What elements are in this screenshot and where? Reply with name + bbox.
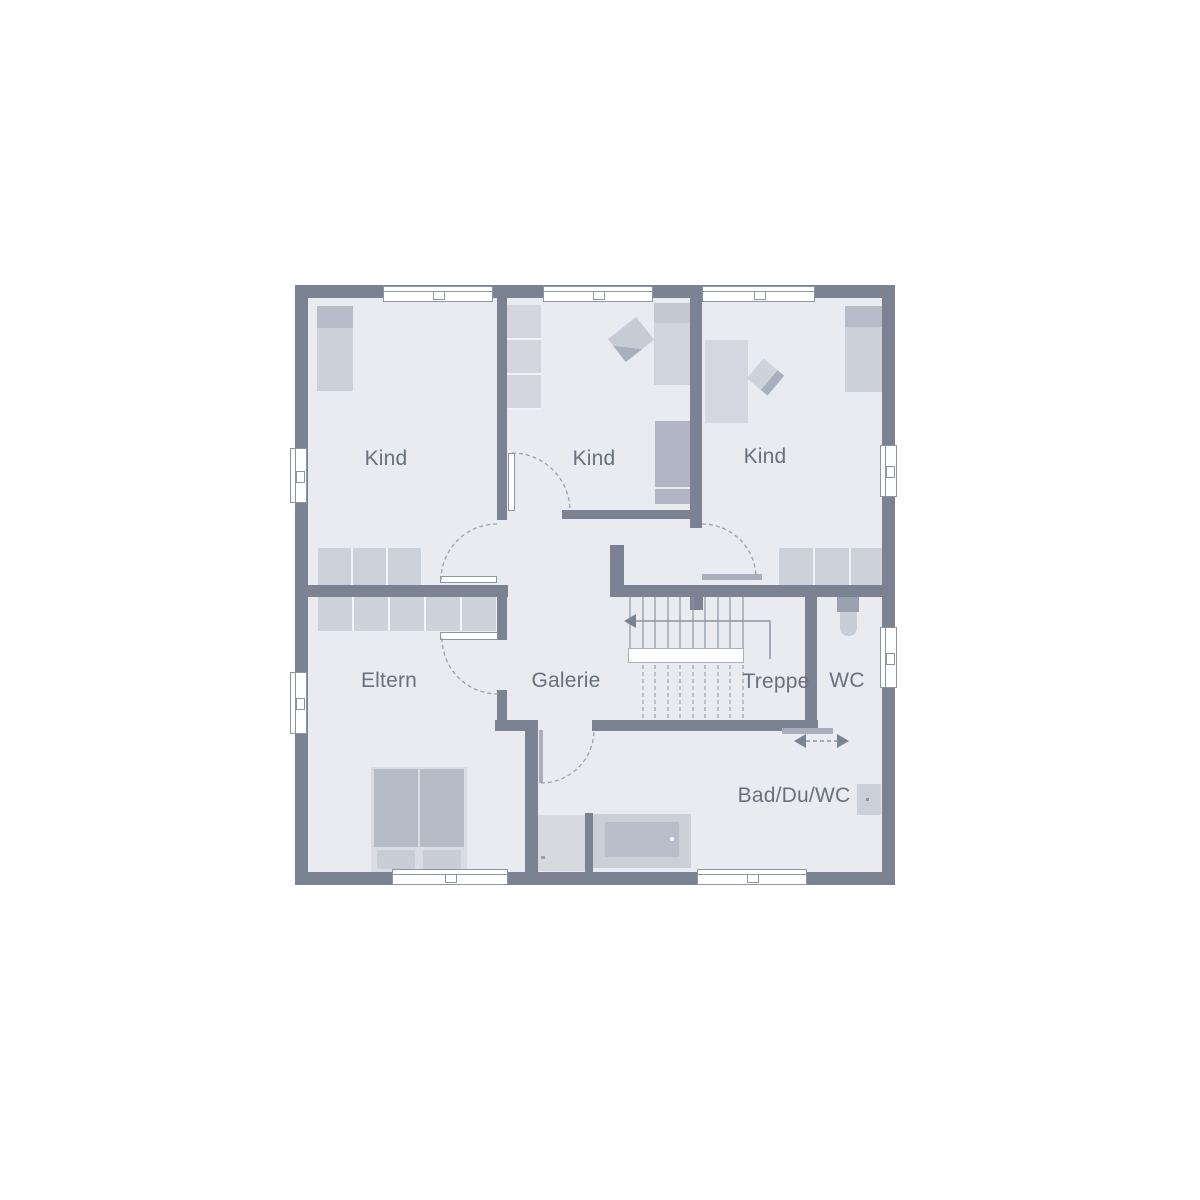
toilet-tank bbox=[837, 597, 859, 612]
room-label-kind-3: Kind bbox=[744, 445, 787, 469]
bed-pillow bbox=[423, 850, 461, 869]
bed bbox=[654, 323, 690, 385]
window bbox=[290, 672, 307, 734]
toilet-bowl bbox=[840, 612, 857, 636]
mattress bbox=[374, 769, 418, 847]
room-label-eltern: Eltern bbox=[361, 669, 417, 693]
room-label-kind-2: Kind bbox=[573, 447, 616, 471]
shelf bbox=[507, 305, 541, 410]
door-leaf bbox=[440, 632, 498, 640]
wall bbox=[610, 585, 895, 597]
bed-pillow bbox=[377, 850, 415, 869]
door-leaf bbox=[702, 574, 762, 580]
wardrobe bbox=[318, 548, 421, 585]
washbasin-drain bbox=[866, 798, 869, 801]
wardrobe bbox=[779, 548, 887, 585]
bed bbox=[317, 328, 353, 391]
window bbox=[697, 869, 807, 885]
wall bbox=[690, 597, 703, 610]
shower bbox=[538, 815, 585, 871]
wall bbox=[805, 597, 817, 723]
door-leaf bbox=[508, 453, 515, 511]
wall bbox=[295, 585, 508, 597]
washbasin bbox=[857, 784, 881, 815]
wardrobe bbox=[318, 597, 498, 631]
window bbox=[880, 627, 897, 688]
wall bbox=[497, 298, 507, 520]
window bbox=[383, 286, 493, 302]
bed-pillow bbox=[654, 303, 690, 323]
bathtub-drain bbox=[670, 837, 674, 841]
wall bbox=[495, 720, 538, 731]
floor-plan-canvas: Kind Kind Kind Eltern Galerie Treppe WC … bbox=[0, 0, 1200, 1200]
wall bbox=[562, 510, 702, 519]
room-label-wc: WC bbox=[829, 669, 864, 693]
door-leaf bbox=[539, 730, 543, 783]
bed bbox=[845, 327, 884, 392]
room-label-kind-1: Kind bbox=[365, 447, 408, 471]
room-label-treppe: Treppe bbox=[743, 670, 810, 694]
wall bbox=[525, 731, 538, 872]
room-label-bad-du-wc: Bad/Du/WC bbox=[738, 784, 851, 808]
shower-drain bbox=[541, 856, 545, 859]
window bbox=[290, 448, 307, 503]
window bbox=[702, 286, 815, 302]
stair-landing-bar bbox=[628, 648, 744, 663]
wall bbox=[497, 690, 507, 720]
window bbox=[880, 445, 897, 497]
bathtub-basin bbox=[605, 822, 679, 857]
desk bbox=[705, 340, 748, 423]
room-label-galerie: Galerie bbox=[531, 669, 600, 693]
bed-pillow bbox=[317, 306, 353, 328]
bed-pillow bbox=[845, 306, 884, 327]
window bbox=[392, 869, 508, 885]
wall bbox=[690, 298, 702, 528]
door-leaf bbox=[440, 576, 497, 583]
wall bbox=[585, 813, 593, 872]
dresser bbox=[655, 489, 692, 504]
sliding-door-leaf bbox=[782, 728, 833, 734]
wall bbox=[610, 545, 624, 590]
mattress bbox=[420, 769, 464, 847]
wardrobe bbox=[655, 421, 692, 487]
window bbox=[543, 286, 653, 302]
